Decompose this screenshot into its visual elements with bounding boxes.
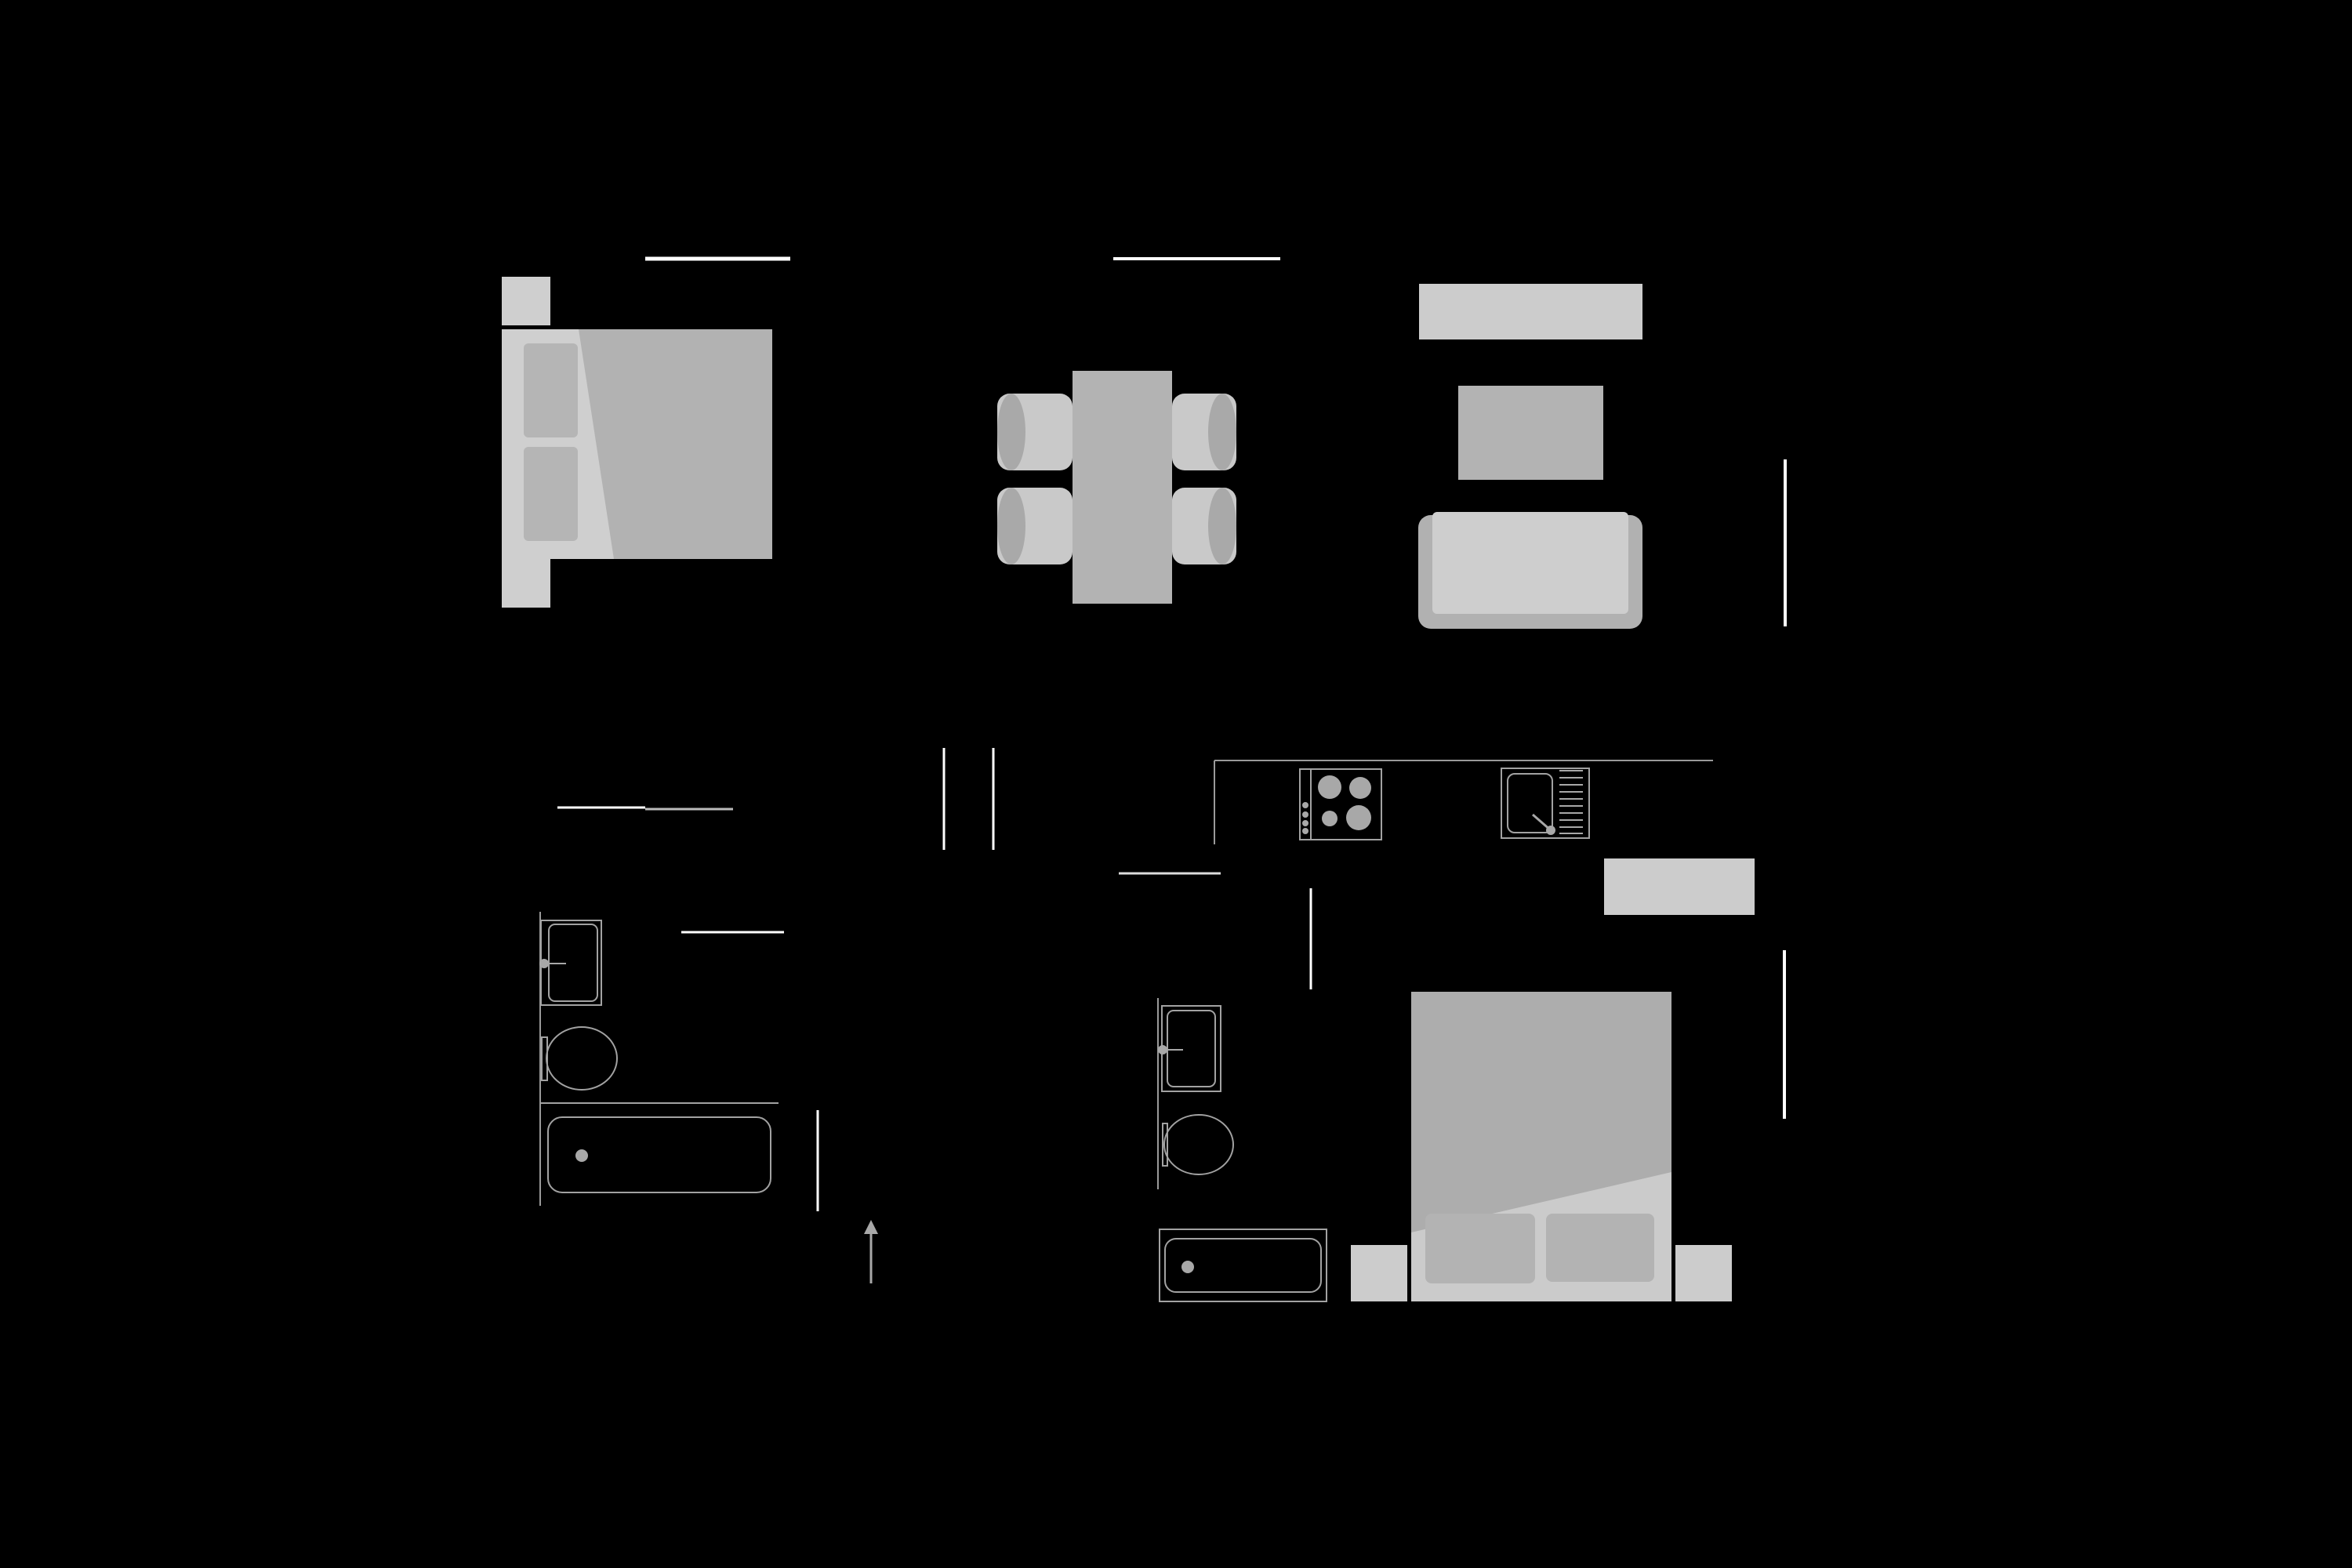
bedroom1-nightstand-bottom xyxy=(502,559,550,608)
kitchen-hob-knob-3 xyxy=(1302,820,1308,826)
kitchen-burner-bottom-right xyxy=(1346,805,1371,830)
bedroom2-nightstand-right xyxy=(1675,1245,1732,1301)
dining-chair-bottom-right-backrest xyxy=(1208,488,1236,564)
bathroom2-tub-drain xyxy=(1181,1261,1194,1273)
bedroom2-pillow-left xyxy=(1425,1214,1535,1283)
bedroom2-bed-headboard xyxy=(1411,1283,1671,1301)
entrance-arrow-head xyxy=(864,1220,878,1234)
kitchen-burner-top-right xyxy=(1349,777,1371,799)
bathroom2-toilet-bowl xyxy=(1164,1115,1233,1174)
kitchen-dresser xyxy=(1604,858,1755,915)
bedroom1-pillow-top xyxy=(524,343,578,437)
bedroom1-nightstand-top xyxy=(502,277,550,325)
dining-table xyxy=(1073,371,1172,604)
bedroom2-pillow-right xyxy=(1546,1214,1654,1282)
kitchen-sink-basin xyxy=(1508,774,1552,833)
kitchen-hob-knob-1 xyxy=(1302,802,1308,808)
dining-chair-top-right-backrest xyxy=(1208,394,1236,470)
kitchen-burner-bottom-left xyxy=(1322,811,1338,826)
kitchen-sink-faucet-dot xyxy=(1546,826,1555,835)
floor-plan-canvas xyxy=(0,0,2352,1568)
dining-chair-bottom-left-backrest xyxy=(997,488,1025,564)
kitchen-hob-knob-2 xyxy=(1302,811,1308,818)
bedroom1-pillow-bottom xyxy=(524,447,578,541)
living-tv-unit xyxy=(1419,284,1642,339)
bathroom2-sink-cabinet xyxy=(1162,1006,1221,1091)
bathroom1-toilet-bowl xyxy=(546,1027,617,1090)
kitchen-hob-knob-4 xyxy=(1302,828,1308,834)
living-sofa-seat xyxy=(1432,512,1628,614)
kitchen-hob-outline xyxy=(1300,769,1381,840)
bathroom1-tub-drain xyxy=(575,1149,588,1162)
dining-chair-top-left-backrest xyxy=(997,394,1025,470)
bathroom2-sink-basin xyxy=(1167,1011,1215,1087)
kitchen-burner-top-left xyxy=(1318,775,1341,799)
living-tv xyxy=(1458,386,1603,480)
bedroom2-nightstand-left xyxy=(1351,1245,1407,1301)
bedroom1-bed-headboard xyxy=(502,329,520,559)
floor-plan-svg xyxy=(0,0,2352,1568)
